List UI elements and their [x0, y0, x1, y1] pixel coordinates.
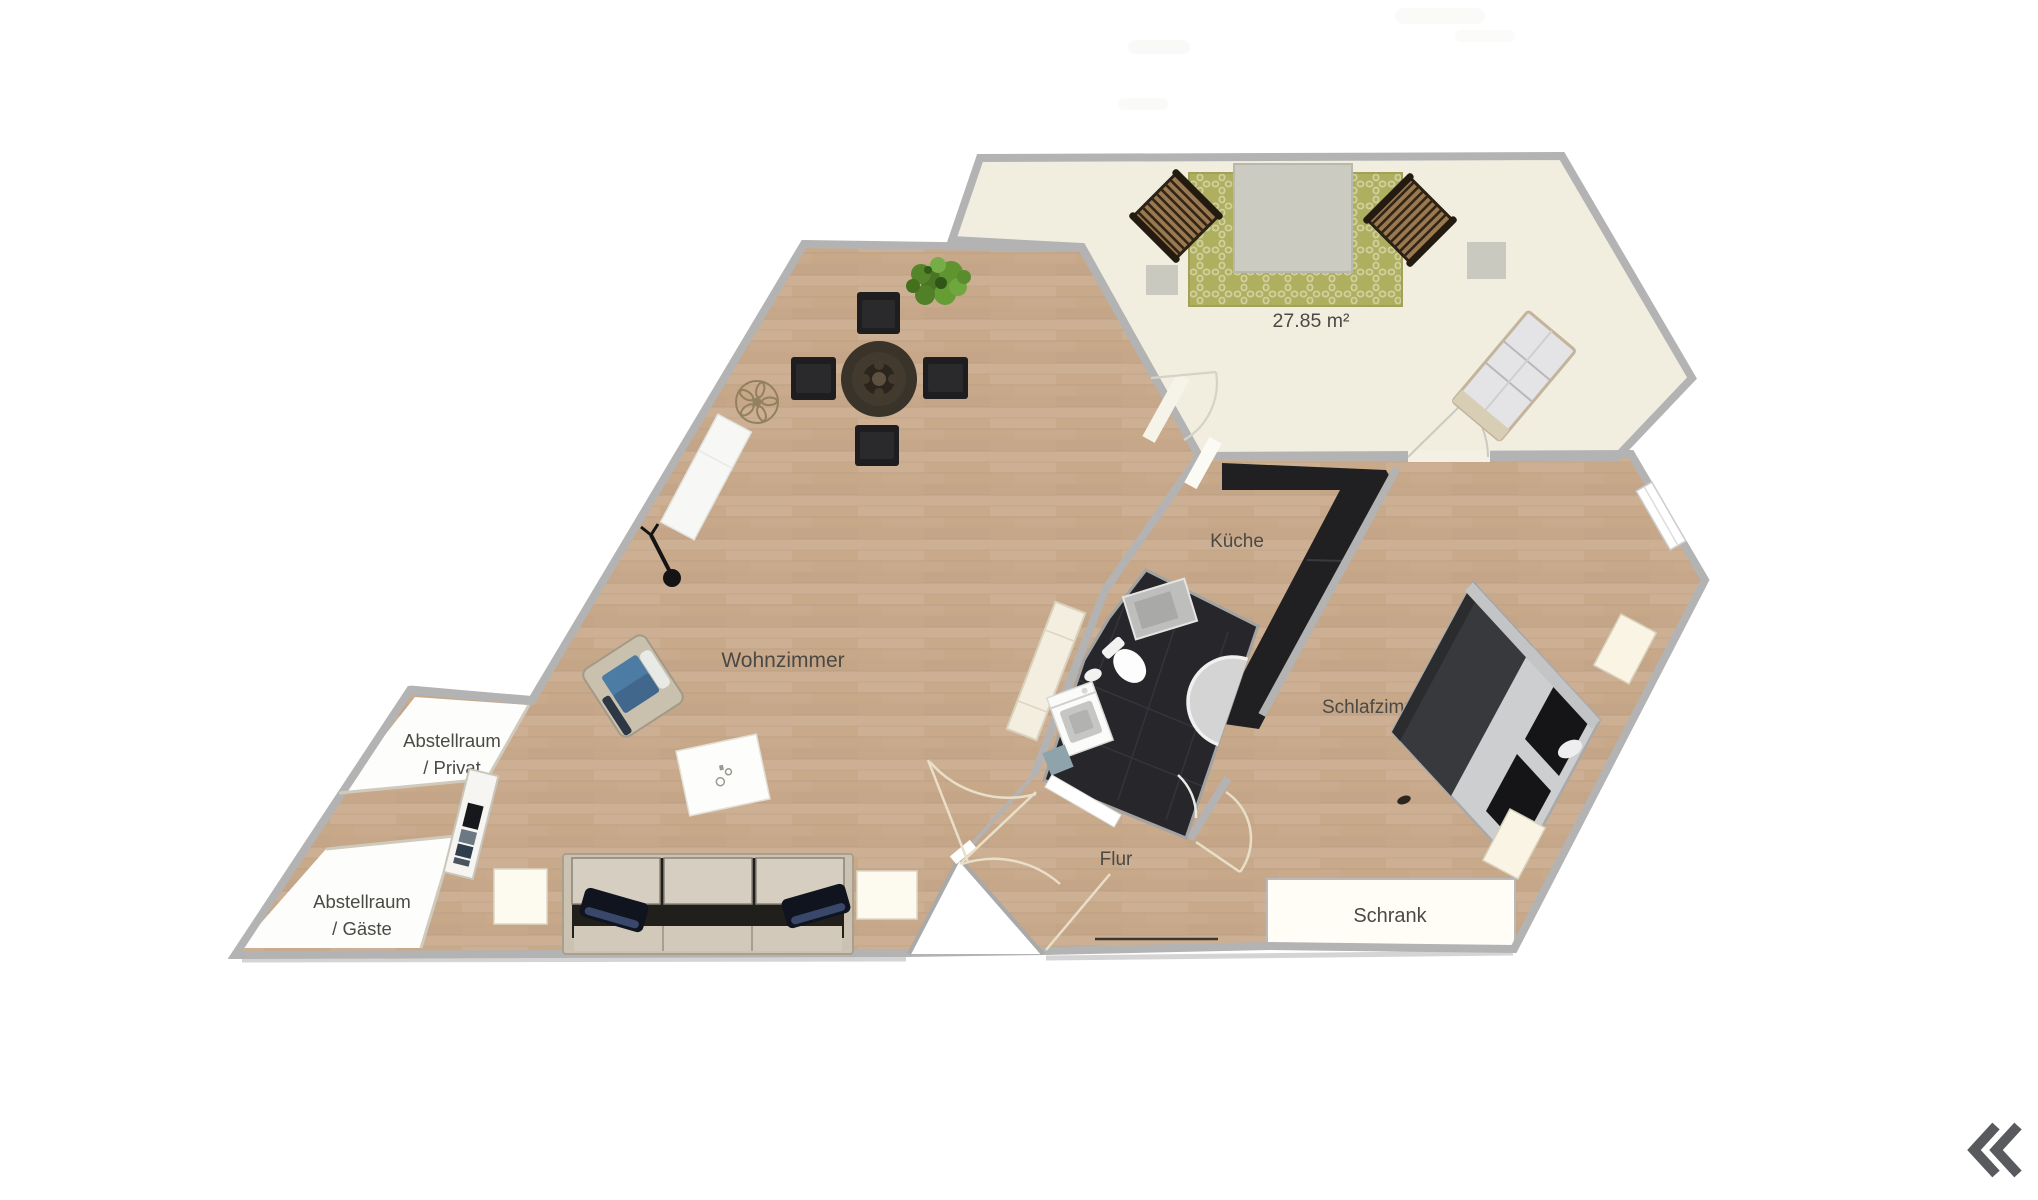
svg-text:Abstellraum: Abstellraum	[313, 891, 411, 912]
svg-text:Küche: Küche	[1210, 531, 1264, 552]
svg-text:/ Gäste: / Gäste	[332, 918, 392, 939]
svg-text:Schrank: Schrank	[1353, 905, 1427, 927]
svg-text:Wohnzimmer: Wohnzimmer	[721, 649, 844, 672]
svg-text:Flur: Flur	[1100, 849, 1133, 870]
svg-text:27.85 m²: 27.85 m²	[1273, 310, 1350, 332]
svg-text:Abstellraum: Abstellraum	[403, 730, 501, 751]
